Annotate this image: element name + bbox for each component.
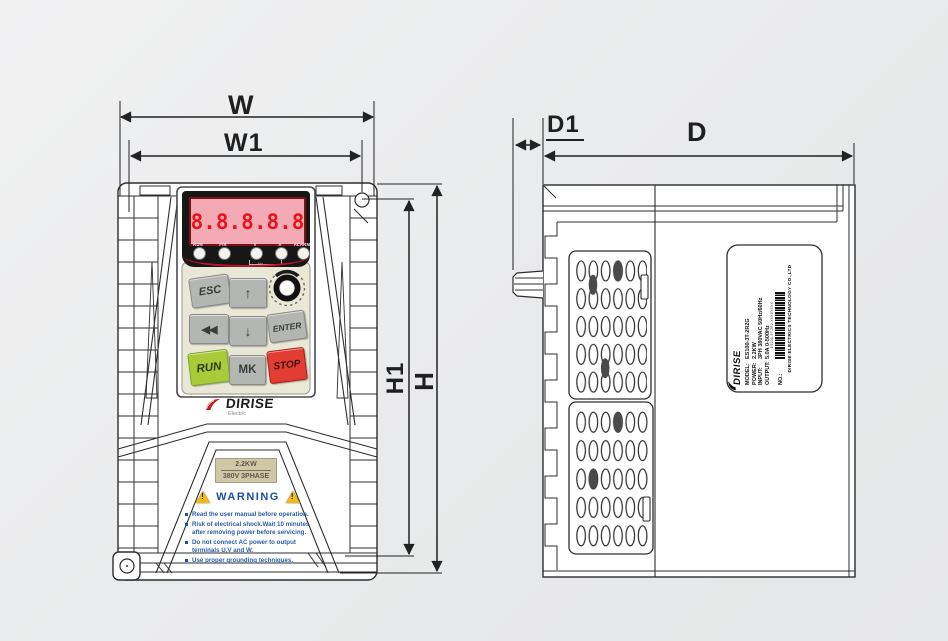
nameplate-brand-name: DIRISE (732, 350, 743, 386)
dim-label-width-inner: W1 (224, 131, 264, 156)
brand-name: DIRISE (225, 397, 274, 411)
seven-segment-display: 8.8.8.8.8 (189, 197, 306, 246)
dirise-swoosh-icon (204, 397, 221, 412)
vent-grille-upper (569, 251, 651, 399)
diagram-canvas: W W1 H H1 D D1 8.8.8.8.8 RUN F/R V A ALA… (0, 0, 948, 641)
mk-button: MK (229, 355, 266, 385)
power-rating-voltage: 380V 3PHASE (221, 470, 271, 482)
brand-logo: DIRISE Electric (204, 397, 296, 417)
power-rating-label: 2.2KW 380V 3PHASE (215, 458, 277, 483)
dim-label-depth: D (687, 119, 708, 146)
warning-title: WARNING (216, 491, 280, 503)
stop-button: STOP (266, 347, 308, 384)
display-bezel: 8.8.8.8.8 RUN F/R V A ALARM Hz (182, 191, 310, 267)
warning-item: Read the user manual before operation. (184, 511, 316, 519)
back-arrow-button: ◀◀ (189, 314, 229, 344)
warning-heading: ! WARNING ! (183, 491, 313, 503)
warning-list: Read the user manual before operation. R… (184, 511, 316, 568)
display-digits: 8.8.8.8.8 (191, 199, 304, 244)
warning-item: Do not connect AC power to output termin… (184, 539, 316, 555)
warning-triangle-icon: ! (286, 491, 300, 503)
barcode (775, 291, 785, 359)
nameplate-field: MODEL: ES100-3T-2R2G (745, 252, 752, 385)
nameplate-serial-row: NO.: ES100-3T-2R2-XXXXXXXX (771, 252, 785, 385)
red-accent-line (184, 257, 308, 267)
warning-item: Use proper grounding techniques. (184, 557, 316, 565)
dim-label-height-inner: H1 (384, 355, 408, 401)
warning-item: Risk of electrical shock.Wait 10 minutes… (184, 521, 316, 537)
down-arrow-button: ↓ (229, 316, 267, 346)
nameplate-field: INPUT: 3PH 380VAC 50Hz/60Hz (758, 252, 765, 385)
warning-triangle-icon: ! (196, 491, 210, 503)
dim-label-width: W (228, 92, 254, 119)
power-rating-kw: 2.2KW (216, 459, 276, 470)
nameplate: DIRISE MODEL: ES100-3T-2R2G POWER: 2.2KW… (727, 245, 822, 392)
dim-label-height: H (411, 365, 437, 397)
nameplate-brand: DIRISE (732, 252, 743, 385)
nameplate-company: DIRISE ELECTRICS TECHNOLOGY CO.,LTD (787, 252, 792, 385)
dim-label-depth-knob: D1 (546, 113, 584, 141)
up-arrow-button: ↑ (229, 278, 267, 308)
nameplate-field: POWER: 2.2KW (752, 252, 759, 385)
enter-button: ENTER (266, 309, 308, 343)
vent-grille-lower (569, 402, 653, 554)
run-button: RUN (187, 349, 231, 387)
brand-sub: Electric (226, 412, 274, 418)
esc-button: ESC (188, 273, 232, 308)
